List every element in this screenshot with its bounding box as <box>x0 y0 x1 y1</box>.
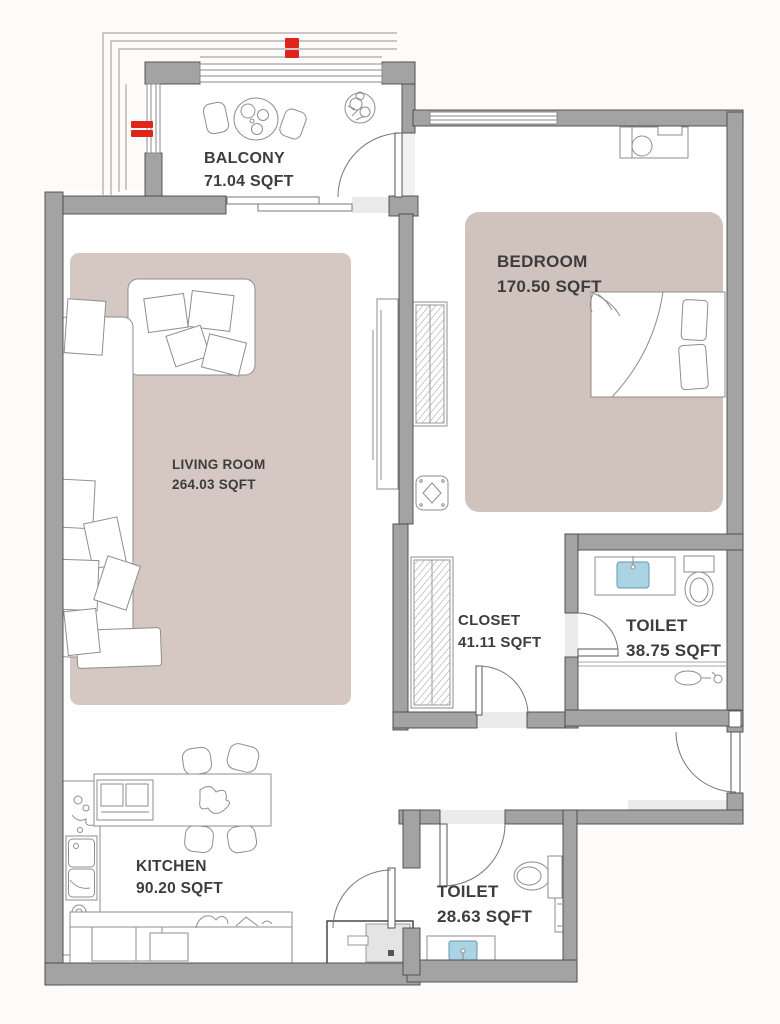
room-name: KITCHEN <box>136 856 223 878</box>
room-label-bedroom: BEDROOM 170.50 SQFT <box>497 250 602 299</box>
tv-unit-sketch <box>373 299 398 489</box>
room-name: LIVING ROOM <box>172 455 266 475</box>
side-stool-sketch <box>416 476 448 510</box>
room-area: 264.03 SQFT <box>172 475 266 495</box>
room-name: TOILET <box>437 880 532 905</box>
room-label-toilet-main: TOILET 38.75 SQFT <box>626 614 721 663</box>
room-label-balcony: BALCONY 71.04 SQFT <box>204 147 294 193</box>
room-area: 90.20 SQFT <box>136 878 223 900</box>
room-label-closet: CLOSET 41.11 SQFT <box>458 610 541 654</box>
room-name: BALCONY <box>204 147 294 170</box>
room-label-kitchen: KITCHEN 90.20 SQFT <box>136 856 223 901</box>
utility-closet <box>327 921 413 964</box>
room-area: 71.04 SQFT <box>204 170 294 193</box>
floor-plan-drawing <box>0 0 780 1024</box>
wall-niche <box>729 711 741 727</box>
room-area: 41.11 SQFT <box>458 632 541 654</box>
room-area: 38.75 SQFT <box>626 639 721 664</box>
room-label-toilet-guest: TOILET 28.63 SQFT <box>437 880 532 929</box>
room-name: BEDROOM <box>497 250 602 275</box>
room-name: TOILET <box>626 614 721 639</box>
desk-sketch <box>620 125 688 158</box>
bed-sketch <box>590 292 725 397</box>
room-label-living-room: LIVING ROOM 264.03 SQFT <box>172 455 266 494</box>
closet-wardrobe <box>411 557 453 708</box>
room-area: 170.50 SQFT <box>497 275 602 300</box>
room-name: CLOSET <box>458 610 541 632</box>
bedroom-wardrobe <box>413 302 447 426</box>
floor-plan: BALCONY 71.04 SQFT BEDROOM 170.50 SQFT L… <box>0 0 780 1024</box>
room-area: 28.63 SQFT <box>437 905 532 930</box>
